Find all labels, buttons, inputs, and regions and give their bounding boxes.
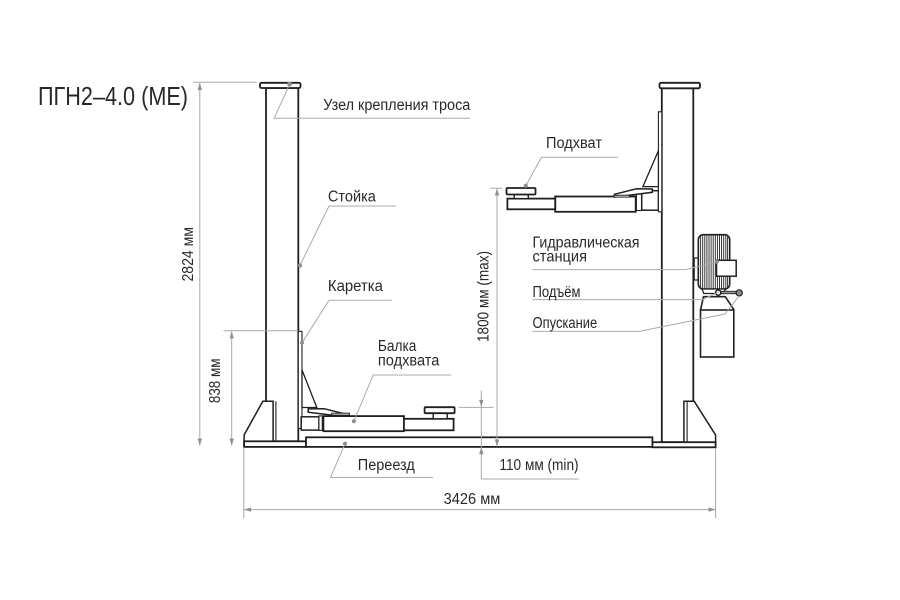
svg-text:Подъём: Подъём [533,284,581,301]
svg-text:110 мм (min): 110 мм (min) [499,457,578,474]
svg-text:Узел крепления троса: Узел крепления троса [323,97,470,114]
svg-text:подхвата: подхвата [378,353,440,370]
svg-text:Переезд: Переезд [358,457,415,474]
svg-text:3426 мм: 3426 мм [444,491,501,508]
svg-text:Подхват: Подхват [546,135,602,152]
svg-text:1800 мм (max): 1800 мм (max) [476,251,493,342]
svg-text:Каретка: Каретка [328,278,383,295]
svg-text:2824 мм: 2824 мм [180,227,197,281]
svg-text:станция: станция [533,248,588,265]
svg-text:Стойка: Стойка [328,188,376,205]
svg-text:Опускание: Опускание [533,315,598,332]
svg-text:ПГН2–4.0 (МЕ): ПГН2–4.0 (МЕ) [38,83,188,111]
svg-text:838 мм: 838 мм [207,358,224,403]
